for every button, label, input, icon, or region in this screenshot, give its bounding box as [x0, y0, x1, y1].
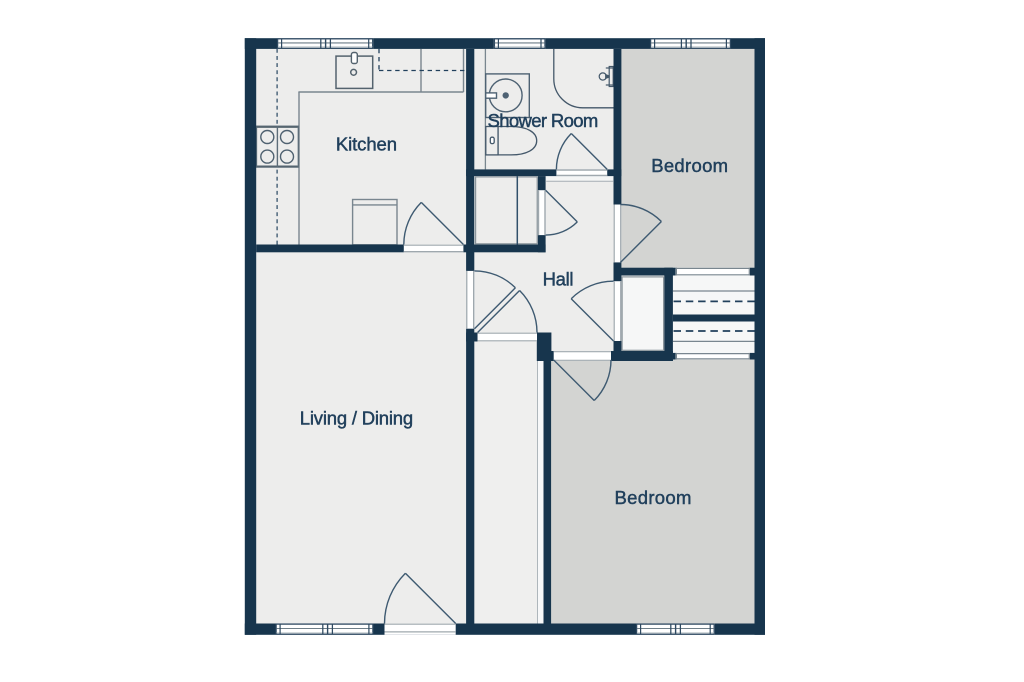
svg-text:Hall: Hall: [543, 268, 573, 289]
svg-text:Living / Dining: Living / Dining: [300, 408, 413, 429]
svg-text:Bedroom: Bedroom: [651, 155, 728, 176]
svg-text:Bedroom: Bedroom: [615, 487, 692, 508]
svg-text:Shower Room: Shower Room: [488, 110, 598, 131]
svg-text:Kitchen: Kitchen: [336, 134, 397, 155]
